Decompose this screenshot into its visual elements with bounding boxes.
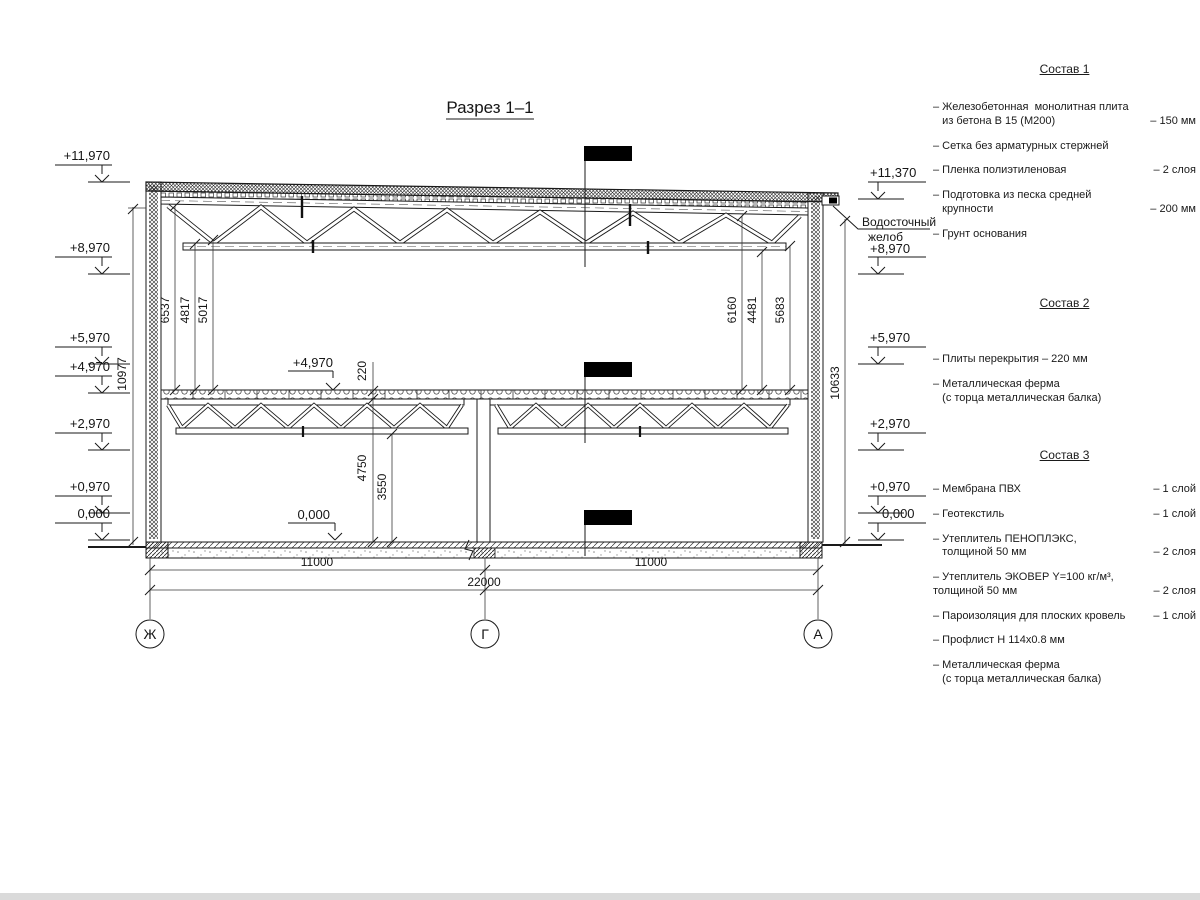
composition-item: – Пароизоляция для плоских кровель – 1 с… <box>933 610 1196 624</box>
gutter <box>822 196 839 205</box>
svg-text:10977: 10977 <box>115 357 129 391</box>
svg-text:+0,970: +0,970 <box>870 479 910 494</box>
svg-text:0,000: 0,000 <box>77 506 110 521</box>
floor-truss-left-bottom-chord <box>176 428 468 434</box>
hollow-core-slab <box>161 390 808 399</box>
level-mark-right-8970: +8,970 <box>858 241 926 274</box>
item-value: – 1 слой <box>1153 508 1196 522</box>
composition-1-title: Состав 1 <box>933 62 1196 77</box>
svg-text:3550: 3550 <box>375 473 389 500</box>
level-mark-left-2970: +2,970 <box>55 416 130 450</box>
composition-item: – Подготовка из песка средней крупности … <box>933 189 1196 217</box>
footing-right <box>800 542 822 558</box>
composition-item: – Железобетонная монолитная плита из бет… <box>933 101 1196 129</box>
footing-left <box>146 542 168 558</box>
composition-3-title: Состав 3 <box>933 448 1196 463</box>
level-mark-left-11970: +11,970 <box>55 148 130 182</box>
composition-item: – Грунт основания <box>933 228 1196 242</box>
level-mark-left-8970: +8,970 <box>55 240 130 274</box>
item-name: – Железобетонная монолитная плита из бет… <box>933 101 1144 129</box>
title-text: Разрез 1–1 <box>446 98 533 117</box>
svg-text:11000: 11000 <box>301 555 334 569</box>
composition-item: – Утеплитель ЭКОВЕР Y=100 кг/м³, толщино… <box>933 571 1196 599</box>
ground-slab <box>88 540 882 560</box>
composition-list-1: Состав 1 – Железобетонная монолитная пли… <box>933 62 1196 252</box>
item-value: – 150 мм <box>1150 115 1196 129</box>
svg-text:0,000: 0,000 <box>882 506 915 521</box>
composition-item: – Геотекстиль – 1 слой <box>933 508 1196 522</box>
dim-bay-left: 6537 4817 5017 <box>158 201 218 395</box>
roof-assembly <box>146 182 839 254</box>
level-mark-right-2970: +2,970 <box>858 416 926 450</box>
svg-text:6160: 6160 <box>725 296 739 323</box>
svg-text:5017: 5017 <box>196 296 210 323</box>
drawing-canvas: Разрез 1–1 <box>0 0 1200 900</box>
left-wall <box>146 182 161 542</box>
svg-text:4817: 4817 <box>178 296 192 323</box>
item-name: – Геотекстиль <box>933 508 1147 522</box>
svg-text:11000: 11000 <box>635 555 668 569</box>
item-name: – Профлист Н 114х0.8 мм <box>933 634 1190 648</box>
item-name: – Подготовка из песка средней крупности <box>933 189 1144 217</box>
composition-item: – Металлическая ферма (с торца металличе… <box>933 659 1196 687</box>
item-name: – Пароизоляция для плоских кровель <box>933 610 1147 624</box>
level-mark-left-0000: 0,000 <box>55 506 130 540</box>
window-bottom-edge <box>0 893 1200 900</box>
svg-text:5683: 5683 <box>773 296 787 323</box>
item-value: – 1 слой <box>1153 483 1196 497</box>
level-mark-inner-4970: +4,970 <box>288 355 340 390</box>
level-mark-right-0000: 0,000 <box>858 506 926 540</box>
svg-text:+8,970: +8,970 <box>870 241 910 256</box>
svg-text:+11,970: +11,970 <box>64 148 110 163</box>
axis-bubbles: Ж Г А <box>136 620 832 648</box>
composition-item: – Профлист Н 114х0.8 мм <box>933 634 1196 648</box>
right-wall <box>808 193 823 542</box>
item-value: – 2 слоя <box>1154 546 1196 560</box>
item-name: – Мембрана ПВХ <box>933 483 1147 497</box>
svg-text:+2,970: +2,970 <box>70 416 110 431</box>
composition-item: – Утеплитель ПЕНОПЛЭКС, толщиной 50 мм –… <box>933 533 1196 561</box>
gutter-label: Водосточный желоб <box>833 206 936 244</box>
flag-roof <box>584 146 632 161</box>
item-name: – Утеплитель ПЕНОПЛЭКС, толщиной 50 мм <box>933 533 1148 561</box>
dim-spans: 11000 11000 22000 <box>145 555 823 619</box>
composition-list-3: Состав 3 – Мембрана ПВХ – 1 слой – Геоте… <box>933 448 1196 698</box>
item-value: – 1 слой <box>1153 610 1196 624</box>
svg-text:Г: Г <box>481 626 489 642</box>
svg-text:4750: 4750 <box>355 454 369 481</box>
composition-item: – Мембрана ПВХ – 1 слой <box>933 483 1196 497</box>
composition-list-2: Состав 2 – Плиты перекрытия – 220 мм – М… <box>933 296 1196 416</box>
svg-text:+5,970: +5,970 <box>870 330 910 345</box>
item-name: – Плиты перекрытия – 220 мм <box>933 353 1190 367</box>
drawing-title: Разрез 1–1 <box>446 98 534 119</box>
svg-text:+4,970: +4,970 <box>70 359 110 374</box>
item-name: – Грунт основания <box>933 228 1190 242</box>
center-column <box>477 399 490 542</box>
item-name: – Утеплитель ЭКОВЕР Y=100 кг/м³, толщино… <box>933 571 1148 599</box>
floor-truss-right-bottom-chord <box>498 428 788 434</box>
svg-text:6537: 6537 <box>158 296 172 323</box>
item-value: – 200 мм <box>1150 203 1196 217</box>
level-mark-right-5970: +5,970 <box>858 330 926 364</box>
svg-text:+8,970: +8,970 <box>70 240 110 255</box>
item-value: – 2 слоя <box>1154 585 1196 599</box>
svg-text:0,000: 0,000 <box>297 507 330 522</box>
slab-screed <box>146 542 822 548</box>
item-value: – 2 слоя <box>1154 164 1196 178</box>
composition-item: – Плиты перекрытия – 220 мм <box>933 353 1196 367</box>
svg-text:+11,370: +11,370 <box>870 165 916 180</box>
item-name: – Пленка полиэтиленовая <box>933 164 1148 178</box>
flag-ground <box>584 510 632 525</box>
svg-text:10633: 10633 <box>828 366 842 400</box>
composition-item: – Металлическая ферма (с торца металличе… <box>933 378 1196 406</box>
dim-mid: 220 4750 3550 <box>355 361 397 547</box>
svg-text:4481: 4481 <box>745 296 759 323</box>
item-name: – Металлическая ферма (с торца металличе… <box>933 659 1190 687</box>
composition-2-title: Состав 2 <box>933 296 1196 311</box>
gutter-label-line1: Водосточный <box>862 215 936 229</box>
svg-text:+4,970: +4,970 <box>293 355 333 370</box>
composition-item: – Сетка без арматурных стержней <box>933 140 1196 154</box>
dim-overall-left: 10977 <box>115 204 146 547</box>
composition-item: – Пленка полиэтиленовая – 2 слоя <box>933 164 1196 178</box>
footing-center <box>474 548 495 558</box>
dim-overall-right: 10633 <box>828 216 850 547</box>
svg-text:А: А <box>813 626 823 642</box>
svg-text:+5,970: +5,970 <box>70 330 110 345</box>
item-name: – Сетка без арматурных стержней <box>933 140 1190 154</box>
dim-bay-right: 6160 4481 5683 <box>725 211 795 395</box>
svg-text:22000: 22000 <box>467 575 501 589</box>
level-mark-right-11370: +11,370 <box>858 165 926 199</box>
svg-text:Ж: Ж <box>144 626 157 642</box>
svg-text:+2,970: +2,970 <box>870 416 910 431</box>
svg-text:+0,970: +0,970 <box>70 479 110 494</box>
level-mark-inner-0000: 0,000 <box>288 507 342 540</box>
flag-floor <box>584 362 632 377</box>
svg-text:220: 220 <box>355 361 369 381</box>
item-name: – Металлическая ферма (с торца металличе… <box>933 378 1190 406</box>
